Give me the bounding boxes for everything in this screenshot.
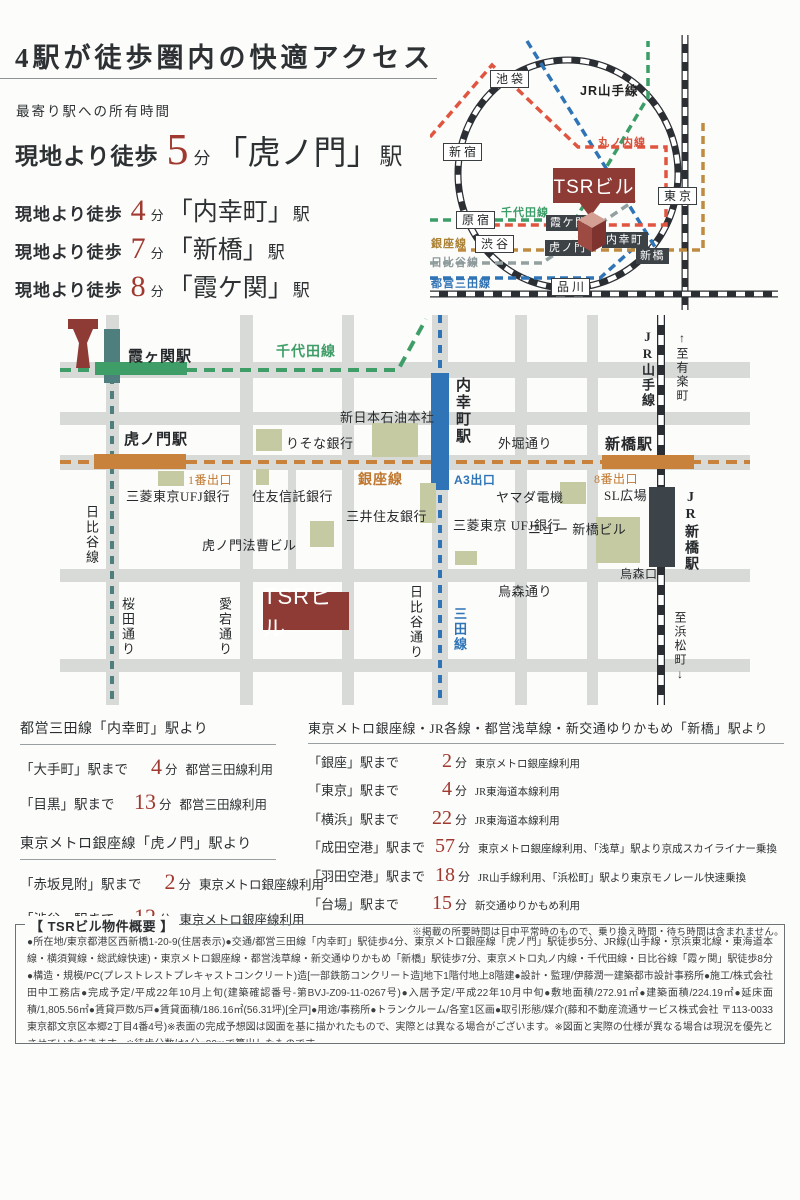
minutes-unit: 分 [458,868,470,885]
access-line-uchisaiwaicho: 現地より徒歩 4 分 「内幸町」 駅 [15,192,310,228]
minutes-unit: 分 [165,759,178,778]
minutes: 57 [425,835,458,858]
station-box-ikebukuro: 池袋 [490,70,529,88]
route: JR山手線利用、「浜松町」駅より東京モノレール快速乗換 [478,870,746,885]
minutes: 4 [422,778,455,801]
direction-hamamatsucho-label: 至浜松町↓ [672,611,689,683]
minutes: 18 [425,864,458,887]
subtitle: 最寄り駅への所有時間 [16,100,171,120]
table-row: 「羽田空港」駅まで 18 分 JR山手線利用、「浜松町」駅より東京モノレール快速… [308,864,784,887]
destination: 「成田空港」駅まで [308,837,425,856]
route: JR東海道本線利用 [475,784,560,799]
access-minutes: 8 [131,270,146,304]
street-map: 霞ヶ関駅 千代田線 虎ノ門駅 内幸町駅 新橋駅 JR山手線 ↑至有楽町 JR新橋… [60,315,750,705]
table-row: 「横浜」駅まで 22 分 JR東海道本線利用 [308,807,784,830]
hibiya-line-label: 日比谷線 [431,254,479,270]
access-station: 「内幸町」 [168,192,293,228]
yamanote-line-label: JR山手線 [580,80,638,99]
sl-plaza-label: SL広場 [604,485,647,504]
table-row: 「大手町」駅まで 4 分 都営三田線利用 [20,754,276,780]
minutes-unit: 分 [455,896,467,913]
access-unit: 分 [151,281,164,300]
sakurada-street-label: 桜田通り [118,597,137,657]
access-suffix: 駅 [380,137,403,171]
destination: 「羽田空港」駅まで [308,866,425,885]
access-line-shimbashi: 現地より徒歩 7 分 「新橋」 駅 [15,230,285,266]
minutes-unit: 分 [455,754,467,771]
mita-line-label: 都営三田線 [431,275,491,291]
station-box-tokyo: 東京 [658,187,697,205]
table-row: 「東京」駅まで 4 分 JR東海道本線利用 [308,778,784,801]
table-row: 「台場」駅まで 15 分 新交通ゆりかもめ利用 [308,892,784,915]
access-minutes: 7 [131,232,146,266]
minutes-unit: 分 [455,782,467,799]
ginza-line-label: 銀座線 [431,235,467,251]
station-box-shinagawa: 品川 [551,278,590,296]
access-prefix: 現地より徒歩 [15,200,123,225]
route: 東京メトロ銀座線利用、「浅草」駅より京成スカイライナー乗換 [478,841,777,856]
station-box-shibuya: 渋谷 [475,235,514,253]
table-header-shimbashi: 東京メトロ銀座線・JR各線・都営浅草線・新交通ゆりかもめ「新橋」駅より [308,718,784,744]
ginza-line-label: 銀座線 [358,469,403,489]
table-row: 「目黒」駅まで 13 分 都営三田線利用 [20,789,276,815]
destination: 「銀座」駅まで [308,752,422,771]
access-unit: 分 [151,243,164,262]
direction-yurakucho-label: ↑至有楽町 [674,331,691,403]
chiyoda-line-label: 千代田線 [501,204,549,220]
table-row: 「銀座」駅まで 2 分 東京メトロ銀座線利用 [308,750,784,773]
access-station: 「新橋」 [168,230,268,266]
new-shimbashi-label: ニュー 新橋ビル [528,521,590,539]
table-header-toranomon: 東京メトロ銀座線「虎ノ門」駅より [20,833,276,860]
toranomon-station-label: 虎ノ門駅 [124,428,188,449]
yamada-label: ヤマダ電機 [496,487,564,506]
access-prefix: 現地より徒歩 [15,137,159,171]
access-minutes: 4 [131,194,146,228]
sumitomo-trust-label: 住友信託銀行 [252,486,333,505]
access-prefix: 現地より徒歩 [15,238,123,263]
destination: 「台場」駅まで [308,894,422,913]
route: 都営三田線利用 [186,759,274,778]
page-title: 4駅が徒歩圏内の快適アクセス [15,36,434,75]
mita-line-label: 三田線 [450,607,469,652]
minutes: 13 [122,789,159,815]
exit-a3-label: A3出口 [454,471,495,488]
atago-street-label: 愛宕通り [215,597,234,657]
access-unit: 分 [151,205,164,224]
access-table-left: 都営三田線「内幸町」駅より 「大手町」駅まで 4 分 都営三田線利用 「目黒」駅… [20,718,276,930]
access-suffix: 駅 [268,238,285,263]
route: JR東海道本線利用 [475,813,560,828]
hibiya-line-label: 日比谷線 [82,505,101,565]
ufj-label: 三菱東京UFJ銀行 [126,486,230,505]
table-row: 「赤坂見附」駅まで 2 分 東京メトロ銀座線利用 [20,869,276,895]
property-overview-title: 【 TSRビル物件概要 】 [25,916,179,935]
building-ufj [158,471,184,486]
building-oil-hq [372,423,418,457]
access-minutes: 5 [167,124,189,175]
destination: 「赤坂見附」駅まで [20,873,142,893]
access-line-kasumigaseki: 現地より徒歩 8 分 「霞ケ関」 駅 [15,268,310,304]
jr-shimbashi-station-label: JR新橋駅 [680,490,700,572]
access-prefix: 現地より徒歩 [15,276,123,301]
minutes-unit: 分 [458,839,470,856]
route: 都営三田線利用 [180,794,268,813]
minutes: 4 [128,754,165,780]
station-box-uchisaiwaicho: 内幸町 [602,232,648,248]
uchisaiwaicho-station-label: 内幸町駅 [452,377,473,445]
table-row: 「成田空港」駅まで 57 分 東京メトロ銀座線利用、「浅草」駅より京成スカイライ… [308,835,784,858]
jr-shimbashi-station-building [649,487,675,567]
yamanote-line-label: JR山手線 [638,329,657,408]
access-station: 「霞ケ関」 [168,268,293,304]
sotobori-street-label: 外堀通り [498,433,552,452]
route: 新交通ゆりかもめ利用 [475,898,580,913]
minutes: 15 [422,892,455,915]
risona-label: りそな銀行 [286,433,354,452]
destination: 「大手町」駅まで [20,758,128,778]
mita-uchisaiwaicho-station-bar [431,373,449,490]
shimbashi-station-label: 新橋駅 [605,433,653,454]
hibiyadori-street-label: 日比谷通り [406,585,425,660]
minutes: 22 [422,807,455,830]
building-yamada [560,482,586,504]
tsr-building-icon [577,211,607,253]
access-suffix: 駅 [293,276,310,301]
access-table-right: 東京メトロ銀座線・JR各線・都営浅草線・新交通ゆりかもめ「新橋」駅より 「銀座」… [308,718,784,938]
minutes-unit: 分 [159,794,172,813]
ginza-toranomon-station-bar [94,454,186,469]
minutes: 2 [422,750,455,773]
station-box-shimbashi: 新橋 [636,248,669,264]
station-box-shinjuku: 新宿 [443,143,482,161]
property-overview-box: 【 TSRビル物件概要 】 ●所在地/東京都港区西新橋1-20-9(住居表示)●… [15,924,785,1044]
building-risona [256,429,282,451]
destination: 「目黒」駅まで [20,793,122,813]
tsr-building-callout: TSRビル [263,592,349,630]
access-station: 「虎ノ門」 [215,126,380,174]
title-underline [0,78,437,79]
minutes-unit: 分 [455,811,467,828]
table-header-uchisaiwaicho: 都営三田線「内幸町」駅より [20,718,276,745]
marunouchi-line-label: 丸ノ内線 [598,134,646,150]
building-sumitomo-trust [256,469,269,485]
tsr-location-pointer-icon [60,315,104,369]
karasumori-exit-label: 烏森口 [620,565,658,582]
oil-hq-label: 新日本石油本社 [340,407,435,426]
route: 東京メトロ銀座線利用 [475,756,580,771]
route: 東京メトロ銀座線利用 [199,874,324,893]
access-suffix: 駅 [293,200,310,225]
kasumigaseki-station-label: 霞ヶ関駅 [128,345,192,366]
building-ufj2 [455,551,477,565]
building-hosou [310,521,334,547]
destination: 「横浜」駅まで [308,809,422,828]
smbc-label: 三井住友銀行 [346,506,427,525]
destination: 「東京」駅まで [308,780,422,799]
access-unit: 分 [194,144,211,169]
tsr-building-callout: TSRビル [553,168,635,203]
access-line-toranomon: 現地より徒歩 5 分 「虎ノ門」 駅 [15,124,403,175]
chiyoda-line-label: 千代田線 [276,341,336,361]
property-overview-body: ●所在地/東京都港区西新橋1-20-9(住居表示)●交通/都営三田線「内幸町」駅… [16,925,784,1042]
ginza-shimbashi-station-bar [602,455,694,469]
minutes-unit: 分 [179,874,192,893]
minutes: 2 [142,869,179,895]
station-box-harajuku: 原宿 [456,211,495,229]
hosou-building-label: 虎ノ門法曹ビル [202,535,297,554]
schematic-railway-map: 池袋 新宿 原宿 渋谷 品川 東京 霞ケ関 虎ノ門 内幸町 新橋 JR山手線 丸… [430,35,800,310]
karasumori-street-label: 烏森通り [498,581,552,600]
